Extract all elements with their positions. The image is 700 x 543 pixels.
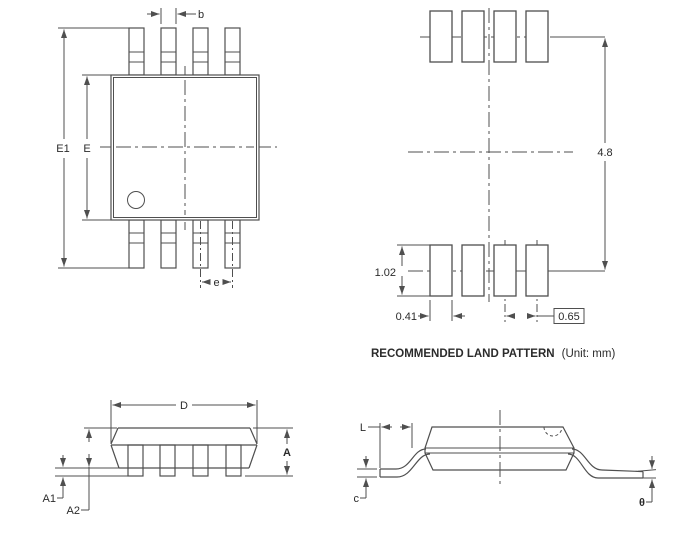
pin: [128, 445, 143, 476]
land-pattern-caption: RECOMMENDED LAND PATTERN (Unit: mm): [371, 348, 615, 360]
profile-view: L c θ: [354, 410, 657, 509]
dim-label-e1: E1: [56, 143, 69, 155]
pin: [226, 445, 241, 476]
caption-unit: (Unit: mm): [562, 348, 616, 360]
dim-lead-span: 4.8: [597, 39, 612, 270]
dim-label-d: D: [180, 400, 188, 412]
dim-label-theta: θ: [639, 497, 645, 509]
dim-label-pad-width: 0.41: [396, 311, 417, 323]
land-pad: [526, 11, 548, 62]
dim-a: A: [245, 428, 293, 476]
dim-label-l: L: [360, 422, 366, 434]
dim-a2: A2: [67, 428, 117, 517]
dim-label-e-body: E: [83, 143, 90, 155]
package-outline-drawing: E1 E b e: [0, 0, 700, 543]
dim-pad-width: 0.41: [396, 300, 465, 323]
caption-title: RECOMMENDED LAND PATTERN: [371, 348, 555, 360]
dim-e-pitch: e: [202, 277, 231, 289]
front-pins: [128, 445, 241, 476]
dim-b: b: [147, 8, 204, 24]
dim-label-pad-pitch: 0.65: [558, 311, 579, 323]
mold-mark-arc: [544, 427, 562, 436]
dim-pad-pitch: 0.65: [507, 309, 585, 324]
pin: [129, 220, 144, 268]
dim-pad-height: 1.02: [375, 245, 432, 296]
dim-theta: θ: [638, 456, 656, 509]
pin: [193, 445, 208, 476]
land-pattern-view: 4.8 1.02 0.41 0.65 RECOMMENDED LAND PATT…: [371, 8, 615, 360]
land-pad: [462, 11, 484, 62]
dim-c: c: [354, 456, 378, 505]
land-pad: [526, 245, 548, 296]
dim-l: L: [360, 422, 412, 468]
pin: [160, 445, 175, 476]
dim-label-a2: A2: [67, 505, 80, 517]
dim-label-a1: A1: [43, 493, 56, 505]
front-view: D A A1 A2: [43, 400, 293, 517]
dim-label-a: A: [283, 447, 291, 459]
land-pad: [430, 11, 452, 62]
dim-d: D: [111, 400, 257, 444]
pin: [161, 220, 176, 268]
dim-a1: A1: [43, 455, 128, 505]
dim-label-e-pitch: e: [213, 277, 219, 289]
drawing-svg: E1 E b e: [0, 0, 700, 543]
dim-label-b: b: [198, 9, 204, 21]
package-top-view: E1 E b e: [56, 8, 277, 289]
land-pad: [494, 245, 516, 296]
dim-label-c: c: [354, 493, 360, 505]
dim-label-lead-span: 4.8: [597, 147, 612, 159]
land-pad: [494, 11, 516, 62]
land-pad: [462, 245, 484, 296]
dim-label-pad-height: 1.02: [375, 267, 396, 279]
land-pad: [430, 245, 452, 296]
left-lead: [380, 449, 430, 477]
right-lead: [568, 449, 643, 478]
